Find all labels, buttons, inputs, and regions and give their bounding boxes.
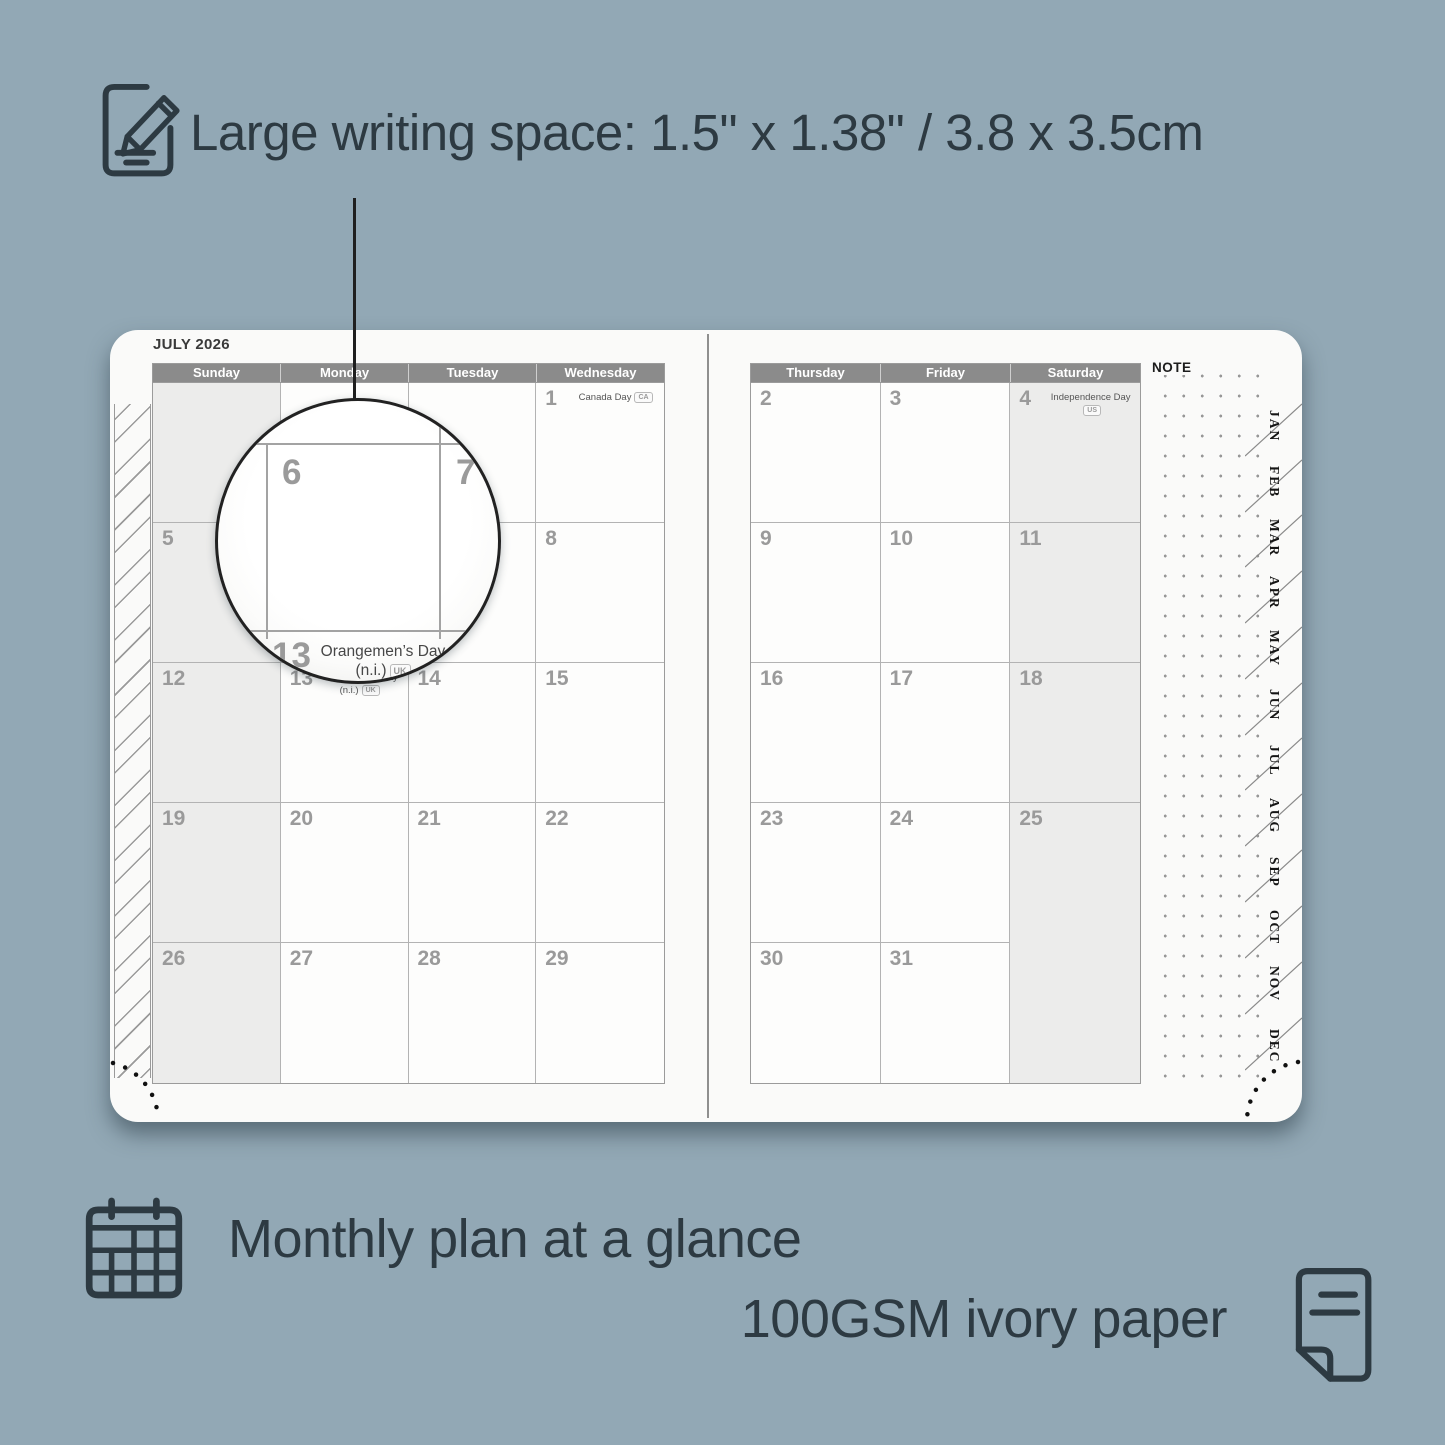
magnified-grid-line bbox=[218, 630, 498, 632]
date-number: 23 bbox=[760, 807, 783, 831]
corner-dotted-arc-right bbox=[1222, 1050, 1302, 1122]
spine-divider bbox=[707, 334, 709, 1118]
month-tab-oct: OCT bbox=[1253, 902, 1295, 954]
date-number: 29 bbox=[545, 947, 568, 971]
weekday-header: Wednesday bbox=[537, 364, 664, 382]
left-tab-edge-hatching bbox=[114, 404, 151, 1078]
writing-space-callout: Large writing space: 1.5" x 1.38" / 3.8 … bbox=[190, 103, 1203, 162]
magnified-grid-line bbox=[266, 443, 268, 639]
date-cell: 15 bbox=[536, 663, 664, 803]
date-number: 26 bbox=[162, 947, 185, 971]
date-number: 8 bbox=[545, 527, 557, 551]
date-number: 17 bbox=[890, 667, 913, 691]
product-image: Large writing space: 1.5" x 1.38" / 3.8 … bbox=[0, 0, 1445, 1445]
month-tab-feb: FEB bbox=[1253, 456, 1295, 508]
date-number: 16 bbox=[760, 667, 783, 691]
month-tab-jun: JUN bbox=[1253, 679, 1295, 731]
country-badge: UK bbox=[362, 685, 380, 696]
date-cell: 14 bbox=[409, 663, 537, 803]
magnified-grid-line bbox=[218, 443, 498, 445]
date-cell: 10 bbox=[881, 523, 1011, 663]
date-cell: 23 bbox=[751, 803, 881, 943]
date-cell: 20 bbox=[281, 803, 409, 943]
notepad-pencil-icon bbox=[84, 74, 192, 182]
date-cell: 25 bbox=[1010, 803, 1140, 943]
date-number: 31 bbox=[890, 947, 913, 971]
holiday-label: Canada DayCA bbox=[570, 392, 661, 405]
note-dot-grid bbox=[1152, 358, 1260, 1088]
date-cell: 28 bbox=[409, 943, 537, 1083]
date-number: 28 bbox=[418, 947, 441, 971]
date-cell: 4 Independence DayUS bbox=[1010, 383, 1140, 523]
date-number: 30 bbox=[760, 947, 783, 971]
weekday-header: Sunday bbox=[153, 364, 281, 382]
date-number: 10 bbox=[890, 527, 913, 551]
date-number: 12 bbox=[162, 667, 185, 691]
date-number: 19 bbox=[162, 807, 185, 831]
month-tab-nov: NOV bbox=[1253, 958, 1295, 1010]
date-cell: 30 bbox=[751, 943, 881, 1083]
date-number: 1 bbox=[545, 387, 557, 411]
date-cell: 13 Orangemen’s Day (n.i.)UK bbox=[281, 663, 409, 803]
weekday-header: Tuesday bbox=[409, 364, 537, 382]
date-cell: 27 bbox=[281, 943, 409, 1083]
date-number: 25 bbox=[1019, 807, 1042, 831]
month-tab-jul: JUL bbox=[1253, 735, 1295, 787]
date-number: 27 bbox=[290, 947, 313, 971]
date-number: 24 bbox=[890, 807, 913, 831]
date-number: 2 bbox=[760, 387, 772, 411]
date-cell: 9 bbox=[751, 523, 881, 663]
weekday-header-row: Thursday Friday Saturday bbox=[750, 363, 1141, 382]
month-tab-may: MAY bbox=[1253, 623, 1295, 675]
note-label: NOTE bbox=[1152, 360, 1198, 375]
date-cell: 19 bbox=[153, 803, 281, 943]
date-cell: 2 bbox=[751, 383, 881, 523]
magnified-holiday-label: Orangemen’s Day (n.i.)UK bbox=[301, 642, 465, 681]
weekday-header-row: Sunday Monday Tuesday Wednesday bbox=[152, 363, 665, 382]
date-cell: 17 bbox=[881, 663, 1011, 803]
date-number: 20 bbox=[290, 807, 313, 831]
date-cell: 24 bbox=[881, 803, 1011, 943]
weekday-header: Friday bbox=[881, 364, 1011, 382]
date-number: 5 bbox=[162, 527, 174, 551]
date-number: 11 bbox=[1019, 527, 1041, 551]
date-number: 15 bbox=[545, 667, 568, 691]
month-tab-strip: JAN FEB MAR APR MAY JUN JUL AUG SEP OCT … bbox=[1245, 330, 1302, 1122]
corner-dotted-arc-left bbox=[110, 1050, 230, 1122]
date-cell: 1 Canada DayCA bbox=[536, 383, 664, 523]
date-number: 4 bbox=[1019, 387, 1031, 411]
date-cell: 31 bbox=[881, 943, 1011, 1083]
date-cell: 22 bbox=[536, 803, 664, 943]
month-tab-sep: SEP bbox=[1253, 846, 1295, 898]
magnifier-circle: 6 7 13 Orangemen’s Day (n.i.)UK bbox=[215, 398, 501, 684]
magnified-grid-line bbox=[439, 407, 441, 639]
callout-connector-line bbox=[353, 198, 356, 400]
weekday-header: Monday bbox=[281, 364, 409, 382]
paper-callout: 100GSM ivory paper bbox=[741, 1288, 1227, 1350]
date-cell: 8 bbox=[536, 523, 664, 663]
holiday-label: Independence DayUS bbox=[1044, 392, 1137, 418]
monthly-plan-callout: Monthly plan at a glance bbox=[228, 1208, 801, 1270]
date-number: 21 bbox=[418, 807, 441, 831]
date-grid: 2 3 4 Independence DayUS 9 10 11 16 17 1… bbox=[750, 382, 1141, 1084]
country-badge: UK bbox=[390, 664, 411, 678]
date-number: 3 bbox=[890, 387, 902, 411]
date-cell bbox=[1010, 943, 1140, 1083]
weekday-header: Thursday bbox=[751, 364, 881, 382]
month-tab-mar: MAR bbox=[1253, 512, 1295, 564]
date-cell: 18 bbox=[1010, 663, 1140, 803]
date-cell: 11 bbox=[1010, 523, 1140, 663]
date-cell: 16 bbox=[751, 663, 881, 803]
magnified-date: 7 bbox=[456, 453, 475, 493]
paper-sheet-icon bbox=[1272, 1264, 1384, 1388]
weekday-header: Saturday bbox=[1011, 364, 1140, 382]
date-cell: 21 bbox=[409, 803, 537, 943]
date-number: 9 bbox=[760, 527, 772, 551]
date-number: 22 bbox=[545, 807, 568, 831]
calendar-grid-icon bbox=[78, 1192, 190, 1304]
month-tab-aug: AUG bbox=[1253, 790, 1295, 842]
month-title: JULY 2026 bbox=[153, 336, 230, 353]
date-cell: 29 bbox=[536, 943, 664, 1083]
month-tab-jan: JAN bbox=[1253, 400, 1295, 452]
magnified-date: 6 bbox=[282, 453, 301, 493]
country-badge: US bbox=[1083, 405, 1101, 416]
country-badge: CA bbox=[634, 392, 652, 403]
date-number: 18 bbox=[1019, 667, 1042, 691]
month-tab-apr: APR bbox=[1253, 567, 1295, 619]
date-cell: 3 bbox=[881, 383, 1011, 523]
right-calendar-grid: Thursday Friday Saturday 2 3 4 Independe… bbox=[750, 363, 1141, 1084]
date-cell: 12 bbox=[153, 663, 281, 803]
